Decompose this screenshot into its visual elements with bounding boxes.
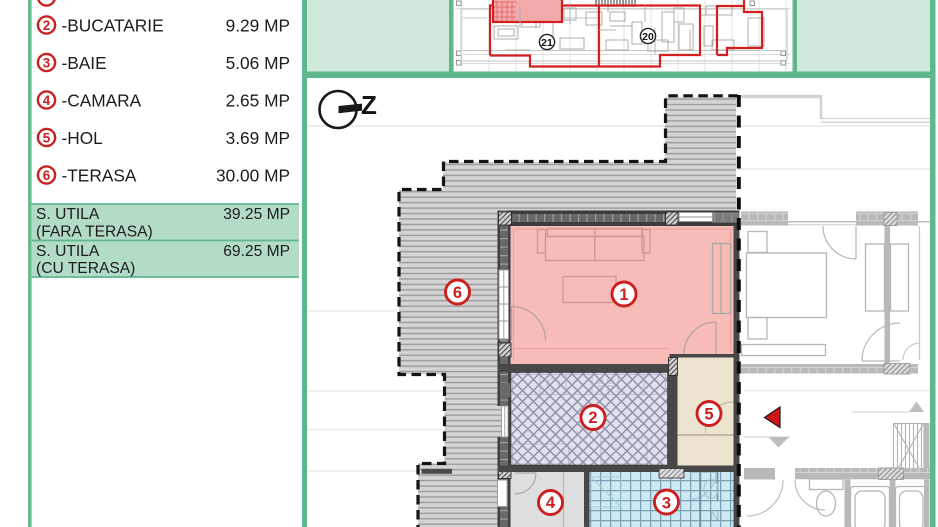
svg-text:39.25 MP: 39.25 MP — [223, 206, 290, 223]
svg-text:-CAMARA: -CAMARA — [62, 90, 142, 110]
svg-text:20: 20 — [642, 31, 654, 43]
svg-text:4: 4 — [43, 93, 51, 108]
svg-text:-BUCATARIE: -BUCATARIE — [62, 15, 164, 35]
svg-text:2: 2 — [588, 409, 597, 427]
svg-text:5.06 MP: 5.06 MP — [226, 53, 290, 73]
svg-text:-TERASA: -TERASA — [62, 165, 137, 185]
svg-text:5: 5 — [43, 130, 51, 145]
svg-text:5: 5 — [704, 406, 713, 424]
svg-text:3: 3 — [43, 55, 51, 70]
svg-text:6: 6 — [453, 284, 462, 302]
svg-text:Z: Z — [361, 90, 377, 120]
svg-text:1: 1 — [619, 286, 628, 304]
svg-text:-HOL: -HOL — [62, 128, 104, 148]
svg-text:NI: NI — [710, 508, 723, 523]
svg-text:S. UTILA: S. UTILA — [36, 243, 100, 260]
svg-text:30.00 MP: 30.00 MP — [216, 165, 290, 185]
svg-text:S. UTILA: S. UTILA — [36, 206, 100, 223]
svg-text:21: 21 — [541, 37, 553, 49]
svg-text:3.69 MP: 3.69 MP — [226, 128, 290, 148]
svg-text:3: 3 — [662, 495, 671, 513]
svg-text:2: 2 — [43, 18, 51, 33]
svg-text:6: 6 — [43, 168, 51, 183]
svg-text:-BAIE: -BAIE — [62, 53, 107, 73]
svg-text:69.25 MP: 69.25 MP — [223, 243, 290, 260]
svg-text:(CU TERASA): (CU TERASA) — [36, 260, 135, 277]
svg-text:9.29 MP: 9.29 MP — [226, 15, 290, 35]
svg-text:(FARA TERASA): (FARA TERASA) — [36, 224, 153, 241]
svg-text:4: 4 — [546, 494, 556, 512]
svg-text:2.65 MP: 2.65 MP — [226, 90, 290, 110]
